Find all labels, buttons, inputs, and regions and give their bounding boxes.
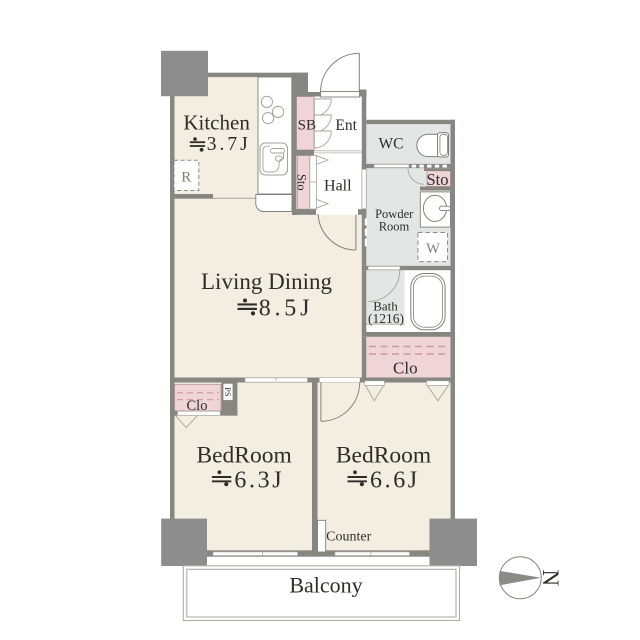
svg-text:R: R [181, 169, 191, 185]
svg-text:Living Dining: Living Dining [201, 269, 332, 294]
svg-text:3.7J: 3.7J [207, 134, 251, 155]
svg-text:WC: WC [379, 135, 404, 152]
svg-text:W: W [426, 241, 440, 257]
svg-text:Ent: Ent [335, 117, 357, 134]
svg-text:SB: SB [298, 118, 316, 134]
svg-text:(1216): (1216) [368, 311, 404, 326]
svg-text:Kitchen: Kitchen [183, 111, 250, 135]
svg-text:Hall: Hall [324, 178, 352, 195]
svg-text:Sto: Sto [426, 170, 448, 189]
svg-text:Room: Room [379, 219, 410, 233]
svg-text:Clo: Clo [187, 398, 208, 414]
svg-text:8.5J: 8.5J [259, 295, 314, 321]
svg-text:6.6J: 6.6J [370, 467, 420, 493]
svg-text:Clo: Clo [393, 359, 418, 378]
svg-text:PS: PS [223, 387, 233, 397]
svg-text:Counter: Counter [326, 530, 371, 545]
svg-text:BedRoom: BedRoom [196, 443, 291, 469]
svg-text:BedRoom: BedRoom [336, 443, 431, 469]
svg-text:N: N [538, 569, 563, 586]
svg-text:Balcony: Balcony [289, 573, 362, 598]
svg-text:6.3J: 6.3J [234, 467, 284, 493]
svg-text:Sto: Sto [295, 174, 309, 191]
